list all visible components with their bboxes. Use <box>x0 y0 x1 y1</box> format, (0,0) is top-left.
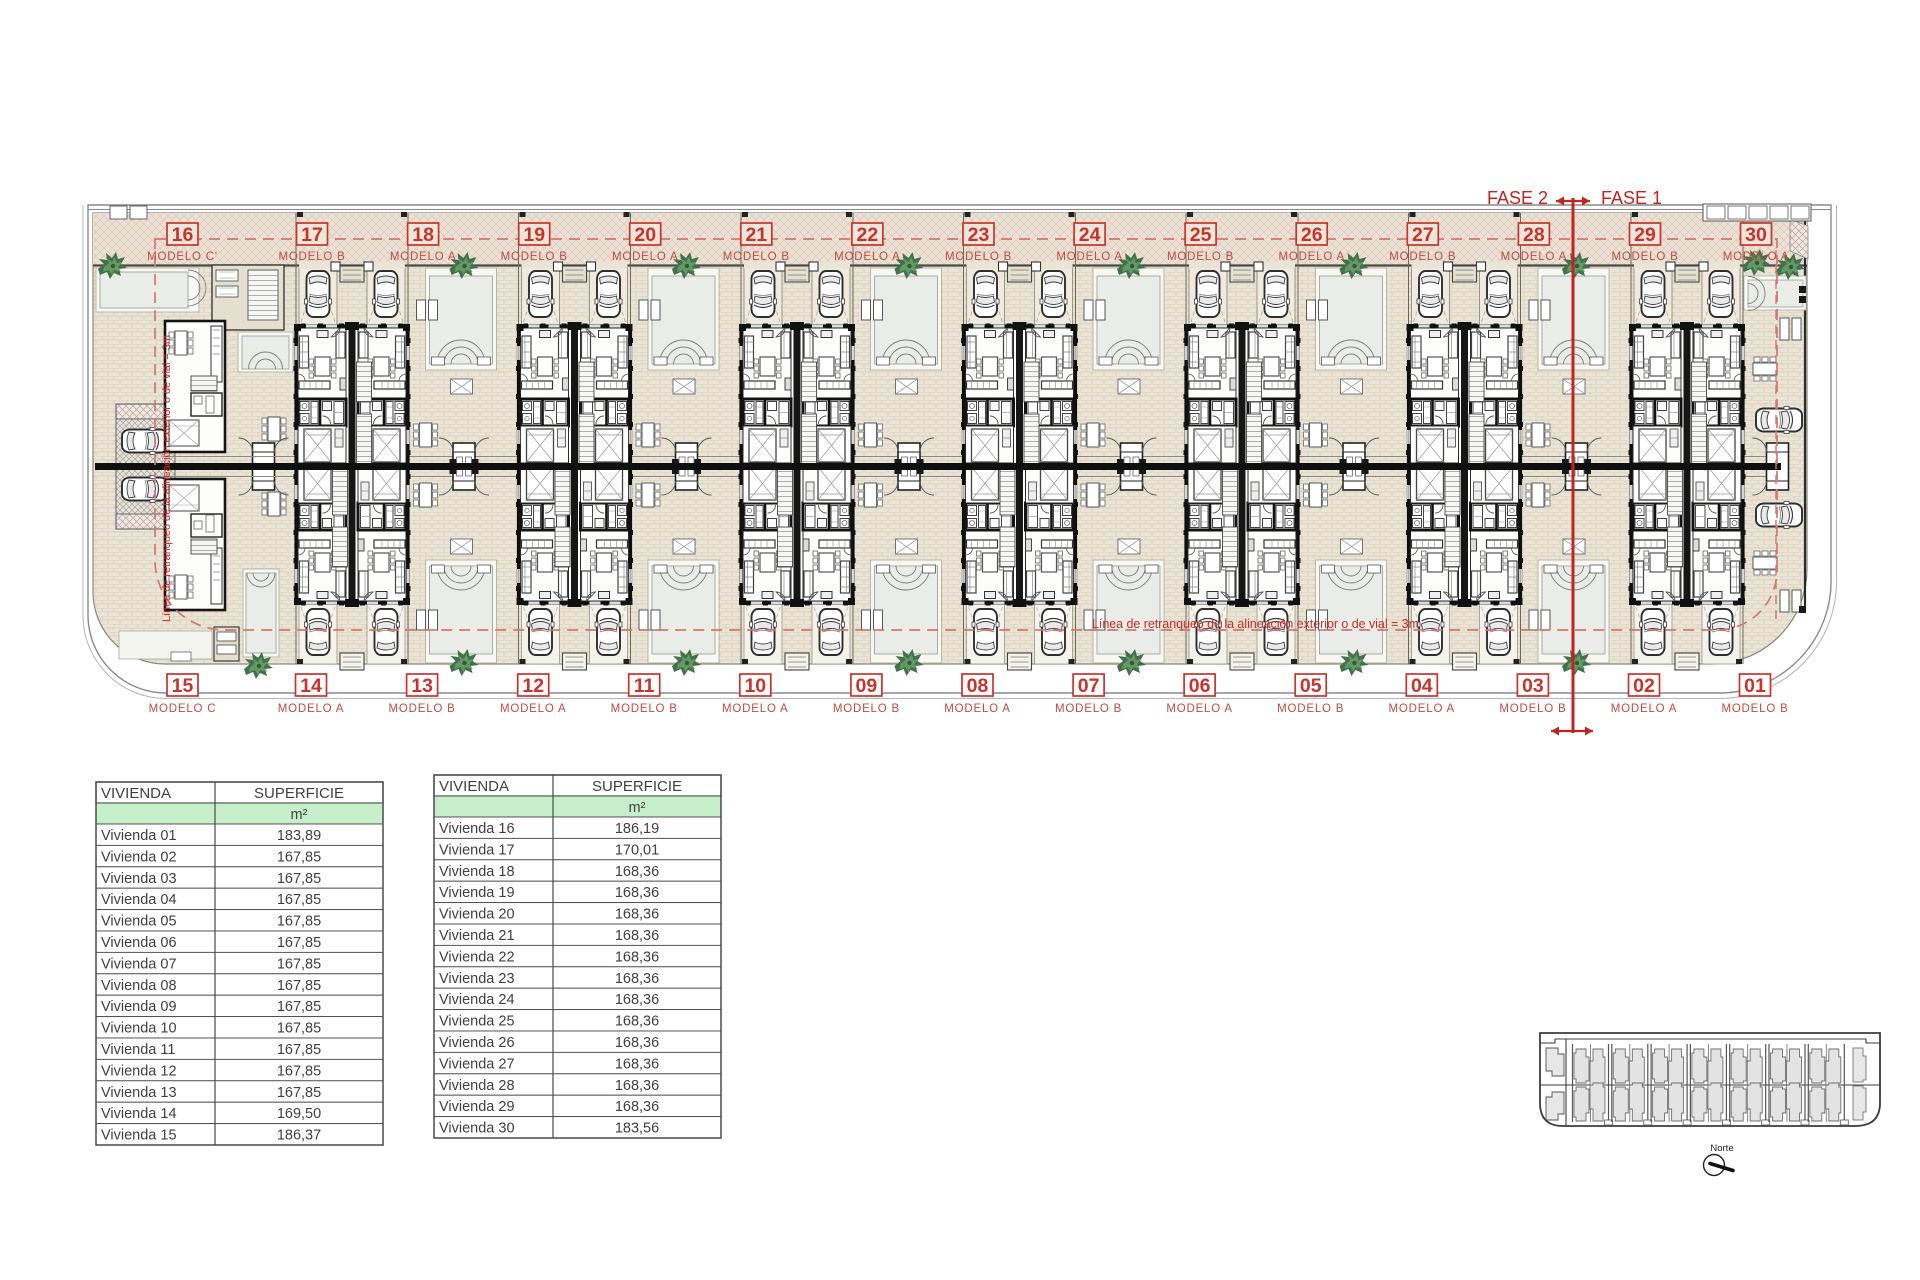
svg-text:05: 05 <box>1300 675 1322 697</box>
svg-text:17: 17 <box>301 224 323 246</box>
svg-text:02: 02 <box>1633 675 1655 697</box>
svg-text:Vivienda 26: Vivienda 26 <box>439 1035 515 1051</box>
svg-text:Vivienda 04: Vivienda 04 <box>101 892 177 908</box>
svg-text:25: 25 <box>1190 224 1212 246</box>
svg-text:MODELO A: MODELO A <box>1611 703 1677 715</box>
svg-text:167,85: 167,85 <box>277 871 321 887</box>
svg-text:20: 20 <box>634 224 656 246</box>
svg-text:Vivienda 30: Vivienda 30 <box>439 1121 515 1137</box>
svg-text:30: 30 <box>1745 224 1767 246</box>
svg-text:167,85: 167,85 <box>277 1021 321 1037</box>
svg-text:Línea de retranqueo de la alin: Línea de retranqueo de la alineación ext… <box>161 335 173 622</box>
svg-text:169,50: 169,50 <box>277 1106 321 1122</box>
svg-text:29: 29 <box>1634 224 1656 246</box>
svg-text:MODELO B: MODELO B <box>833 703 900 715</box>
svg-text:168,36: 168,36 <box>615 1014 659 1030</box>
svg-text:MODELO A: MODELO A <box>722 703 788 715</box>
svg-text:168,36: 168,36 <box>615 864 659 880</box>
svg-text:MODELO B: MODELO B <box>1389 251 1456 263</box>
svg-text:28: 28 <box>1523 224 1545 246</box>
svg-text:167,85: 167,85 <box>277 892 321 908</box>
svg-text:22: 22 <box>857 224 879 246</box>
svg-text:MODELO A: MODELO A <box>278 703 344 715</box>
svg-text:Vivienda 02: Vivienda 02 <box>101 849 177 865</box>
svg-text:MODELO A: MODELO A <box>500 703 566 715</box>
svg-text:13: 13 <box>411 675 433 697</box>
svg-text:167,85: 167,85 <box>277 849 321 865</box>
svg-text:168,36: 168,36 <box>615 885 659 901</box>
svg-text:MODELO B: MODELO B <box>1499 703 1566 715</box>
svg-text:m²: m² <box>291 807 308 823</box>
svg-text:168,36: 168,36 <box>615 1078 659 1094</box>
svg-text:09: 09 <box>856 675 878 697</box>
svg-text:SUPERFICIE: SUPERFICIE <box>592 778 682 795</box>
svg-text:06: 06 <box>1189 675 1211 697</box>
svg-text:168,36: 168,36 <box>615 992 659 1008</box>
svg-text:168,36: 168,36 <box>615 1099 659 1115</box>
svg-text:FASE 1: FASE 1 <box>1601 188 1662 208</box>
svg-text:MODELO C: MODELO C <box>149 703 217 715</box>
svg-text:168,36: 168,36 <box>615 1056 659 1072</box>
svg-text:Vivienda 13: Vivienda 13 <box>101 1085 177 1101</box>
svg-text:MODELO B: MODELO B <box>611 703 678 715</box>
svg-text:Vivienda 23: Vivienda 23 <box>439 971 515 987</box>
svg-text:27: 27 <box>1412 224 1434 246</box>
svg-text:MODELO B: MODELO B <box>1721 703 1788 715</box>
svg-text:MODELO B: MODELO B <box>501 251 568 263</box>
svg-text:MODELO A: MODELO A <box>834 251 900 263</box>
svg-text:MODELO C': MODELO C' <box>147 251 218 263</box>
svg-text:167,85: 167,85 <box>277 935 321 951</box>
svg-text:167,85: 167,85 <box>277 1042 321 1058</box>
svg-text:MODELO A: MODELO A <box>944 703 1010 715</box>
svg-text:167,85: 167,85 <box>277 1063 321 1079</box>
svg-text:168,36: 168,36 <box>615 907 659 923</box>
svg-text:Vivienda 25: Vivienda 25 <box>439 1014 515 1030</box>
svg-text:Vivienda 10: Vivienda 10 <box>101 1021 177 1037</box>
svg-text:Vivienda 12: Vivienda 12 <box>101 1063 177 1079</box>
svg-text:MODELO A: MODELO A <box>1056 251 1122 263</box>
svg-text:01: 01 <box>1744 675 1766 697</box>
svg-text:Vivienda 06: Vivienda 06 <box>101 935 177 951</box>
svg-text:Vivienda 07: Vivienda 07 <box>101 956 177 972</box>
svg-text:18: 18 <box>412 224 434 246</box>
svg-text:03: 03 <box>1522 675 1544 697</box>
svg-text:Vivienda 17: Vivienda 17 <box>439 842 515 858</box>
svg-text:MODELO B: MODELO B <box>278 251 345 263</box>
svg-text:VIVIENDA: VIVIENDA <box>439 778 509 795</box>
svg-text:MODELO A: MODELO A <box>1166 703 1232 715</box>
svg-text:MODELO B: MODELO B <box>723 251 790 263</box>
svg-text:11: 11 <box>634 675 655 697</box>
svg-text:23: 23 <box>968 224 990 246</box>
svg-text:Vivienda 20: Vivienda 20 <box>439 907 515 923</box>
svg-text:MODELO A: MODELO A <box>1723 251 1789 263</box>
svg-text:186,19: 186,19 <box>615 821 659 837</box>
svg-text:07: 07 <box>1078 675 1100 697</box>
svg-text:MODELO B: MODELO B <box>389 703 456 715</box>
svg-text:Vivienda 18: Vivienda 18 <box>439 864 515 880</box>
svg-text:183,56: 183,56 <box>615 1121 659 1137</box>
svg-text:Vivienda 14: Vivienda 14 <box>101 1106 177 1122</box>
svg-text:14: 14 <box>300 675 322 697</box>
svg-text:167,85: 167,85 <box>277 999 321 1015</box>
svg-text:19: 19 <box>523 224 545 246</box>
svg-text:MODELO B: MODELO B <box>945 251 1012 263</box>
svg-text:Vivienda 15: Vivienda 15 <box>101 1128 177 1144</box>
svg-text:MODELO A: MODELO A <box>1389 703 1455 715</box>
svg-text:MODELO A: MODELO A <box>612 251 678 263</box>
svg-text:Vivienda 01: Vivienda 01 <box>101 828 177 844</box>
svg-text:Vivienda 09: Vivienda 09 <box>101 999 177 1015</box>
svg-text:24: 24 <box>1079 224 1101 246</box>
svg-text:MODELO B: MODELO B <box>1167 251 1234 263</box>
svg-text:Vivienda 16: Vivienda 16 <box>439 821 515 837</box>
svg-text:15: 15 <box>172 675 194 697</box>
svg-text:m²: m² <box>629 800 646 816</box>
svg-text:16: 16 <box>172 224 194 246</box>
svg-text:167,85: 167,85 <box>277 978 321 994</box>
svg-text:08: 08 <box>967 675 989 697</box>
svg-text:Vivienda 27: Vivienda 27 <box>439 1056 515 1072</box>
svg-text:Vivienda 11: Vivienda 11 <box>101 1042 175 1058</box>
svg-text:168,36: 168,36 <box>615 949 659 965</box>
svg-text:21: 21 <box>745 224 767 246</box>
svg-text:10: 10 <box>744 675 766 697</box>
svg-text:Vivienda 24: Vivienda 24 <box>439 992 515 1008</box>
svg-text:Vivienda 03: Vivienda 03 <box>101 871 177 887</box>
svg-text:168,36: 168,36 <box>615 928 659 944</box>
svg-text:MODELO A: MODELO A <box>1501 251 1567 263</box>
svg-text:MODELO B: MODELO B <box>1055 703 1122 715</box>
svg-text:VIVIENDA: VIVIENDA <box>101 785 171 802</box>
svg-text:167,85: 167,85 <box>277 1085 321 1101</box>
svg-text:Vivienda 28: Vivienda 28 <box>439 1078 515 1094</box>
svg-text:MODELO A: MODELO A <box>390 251 456 263</box>
svg-text:26: 26 <box>1301 224 1323 246</box>
svg-text:Vivienda 19: Vivienda 19 <box>439 885 515 901</box>
svg-text:Vivienda 22: Vivienda 22 <box>439 949 515 965</box>
svg-text:Norte: Norte <box>1710 1143 1733 1154</box>
svg-text:168,36: 168,36 <box>615 1035 659 1051</box>
svg-text:168,36: 168,36 <box>615 971 659 987</box>
svg-text:MODELO B: MODELO B <box>1277 703 1344 715</box>
svg-text:Vivienda 29: Vivienda 29 <box>439 1099 515 1115</box>
svg-text:04: 04 <box>1411 675 1433 697</box>
svg-text:SUPERFICIE: SUPERFICIE <box>254 785 344 802</box>
svg-text:167,85: 167,85 <box>277 914 321 930</box>
svg-text:FASE 2: FASE 2 <box>1487 188 1548 208</box>
svg-text:Vivienda 08: Vivienda 08 <box>101 978 177 994</box>
svg-text:Vivienda 05: Vivienda 05 <box>101 914 177 930</box>
svg-text:170,01: 170,01 <box>615 842 659 858</box>
svg-text:183,89: 183,89 <box>277 828 321 844</box>
svg-text:186,37: 186,37 <box>277 1128 321 1144</box>
svg-text:167,85: 167,85 <box>277 956 321 972</box>
svg-text:MODELO B: MODELO B <box>1611 251 1678 263</box>
svg-text:Línea de retranqueo de la alin: Línea de retranqueo de la alineación ext… <box>1092 617 1419 631</box>
svg-text:Vivienda 21: Vivienda 21 <box>439 928 515 944</box>
svg-text:12: 12 <box>522 675 544 697</box>
svg-text:MODELO A: MODELO A <box>1278 251 1344 263</box>
